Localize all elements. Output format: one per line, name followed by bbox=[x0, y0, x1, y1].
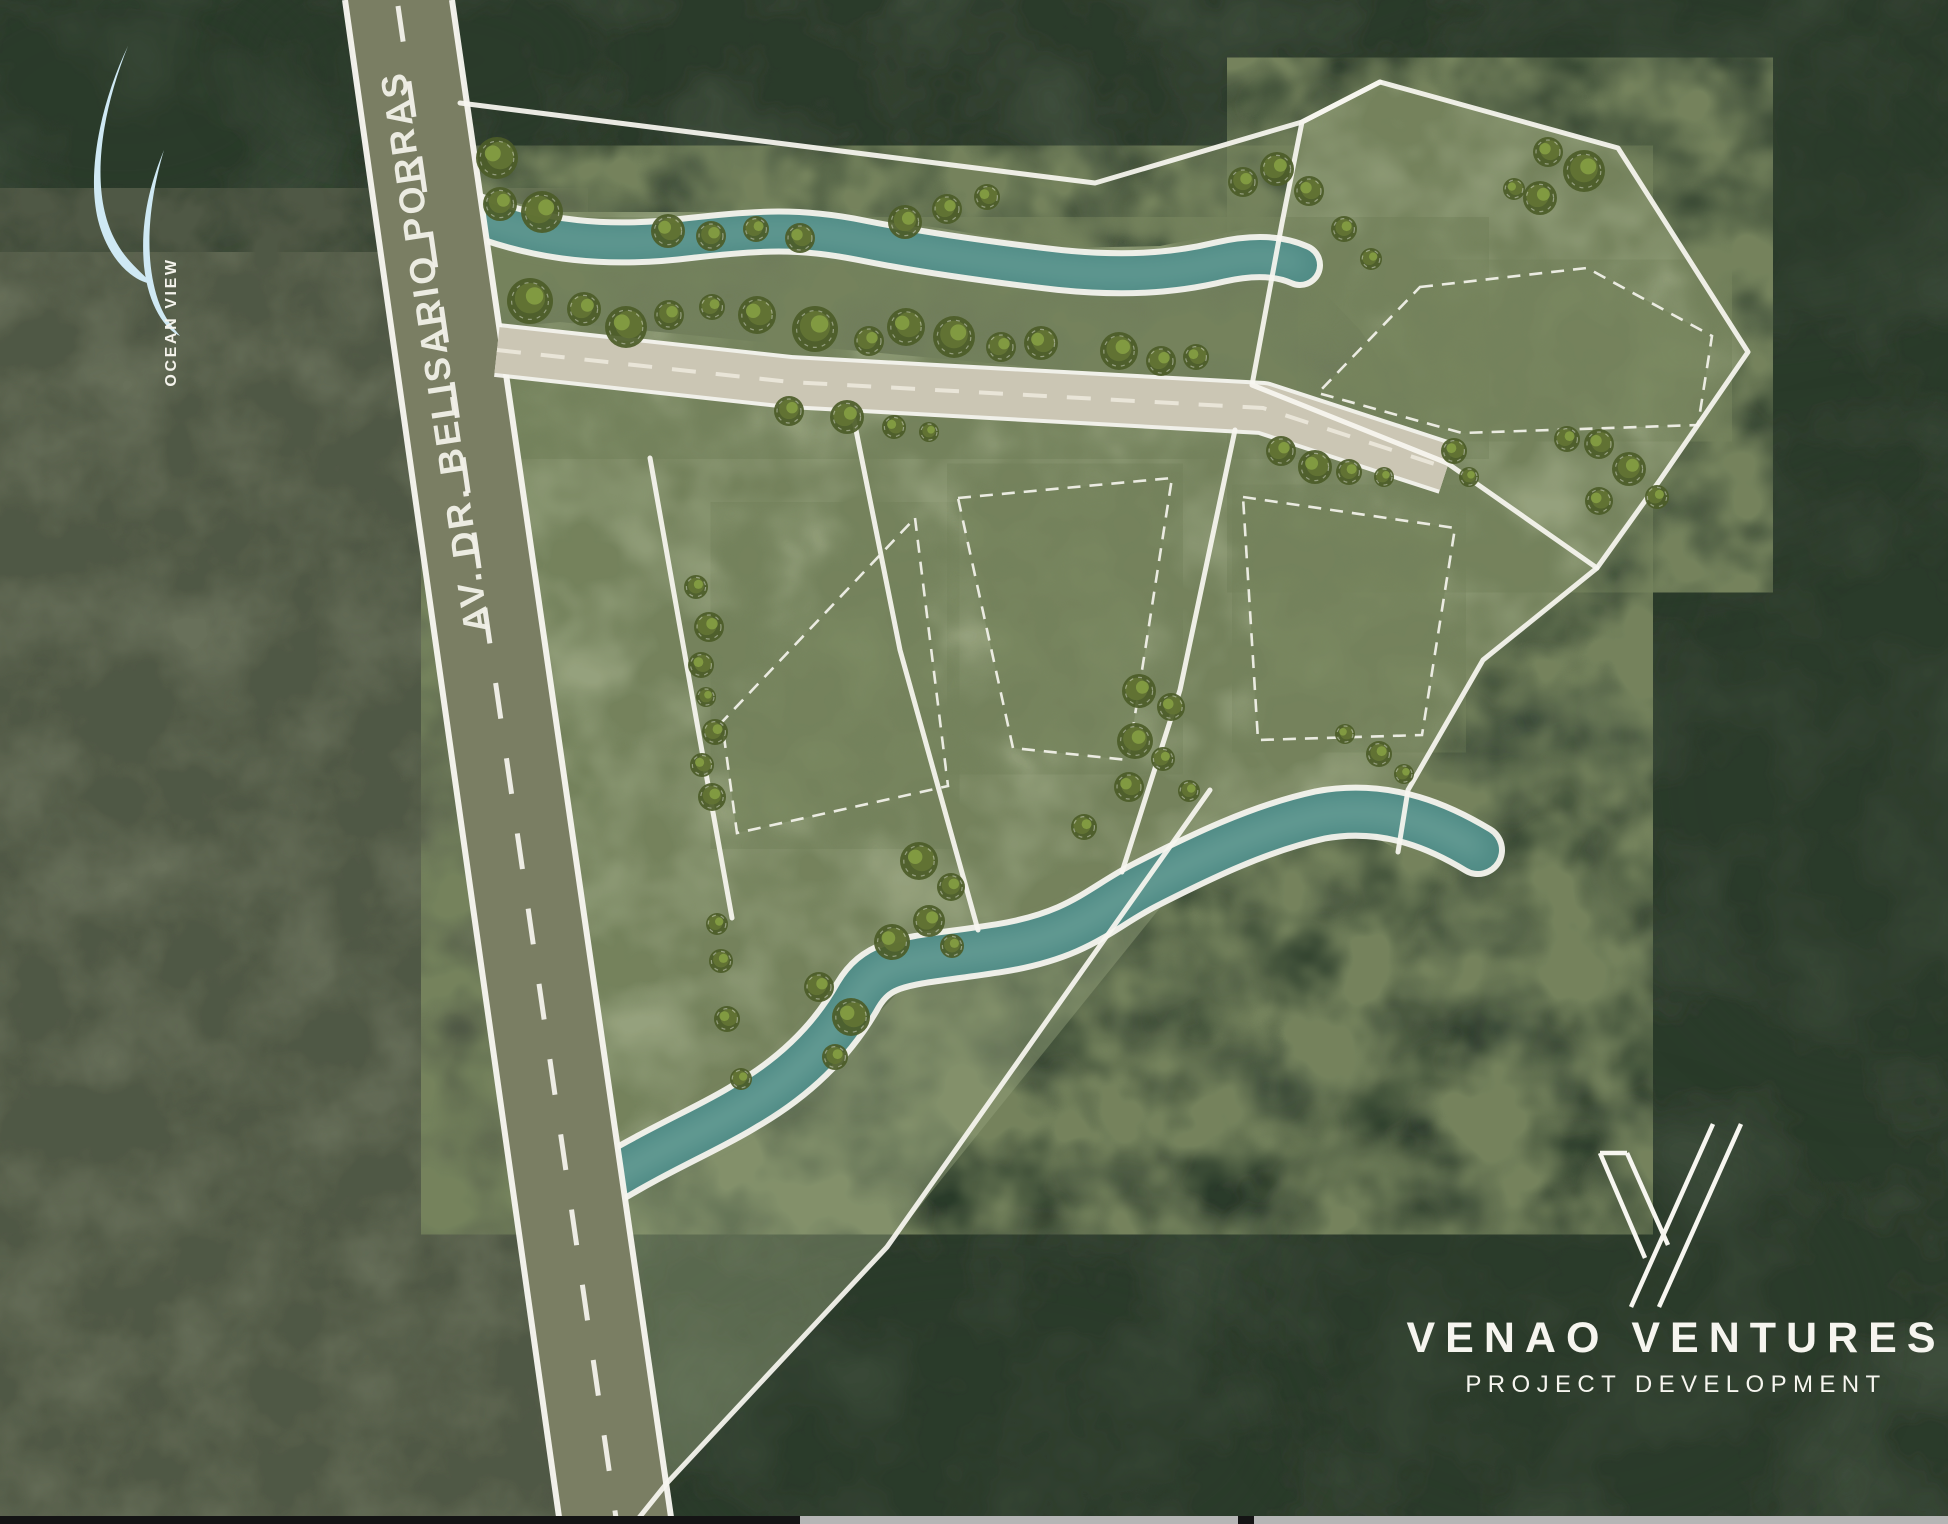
tree bbox=[940, 934, 964, 958]
tree bbox=[1360, 248, 1382, 270]
tree bbox=[651, 214, 685, 248]
tree bbox=[476, 137, 518, 179]
tree bbox=[696, 221, 726, 251]
tree bbox=[605, 306, 647, 348]
tree bbox=[1298, 450, 1332, 484]
tree bbox=[1228, 167, 1258, 197]
lot3-building-envelope bbox=[1243, 497, 1455, 740]
master-plan-canvas: AV. DR. BELISARIO PORRAS OCEAN VIEW VENA… bbox=[0, 0, 1948, 1524]
tree bbox=[521, 191, 563, 233]
tree bbox=[774, 396, 804, 426]
tree bbox=[1024, 326, 1058, 360]
tree bbox=[1114, 772, 1144, 802]
tree bbox=[1554, 426, 1580, 452]
tree bbox=[684, 575, 708, 599]
tree bbox=[696, 687, 716, 707]
tree bbox=[1183, 344, 1209, 370]
tree bbox=[1266, 436, 1296, 466]
tree bbox=[919, 422, 939, 442]
tree bbox=[1336, 459, 1362, 485]
brand-name: VENAO VENTURES bbox=[1406, 1314, 1945, 1362]
tree bbox=[743, 216, 769, 242]
tree bbox=[1394, 764, 1414, 784]
tree bbox=[1117, 723, 1153, 759]
tree bbox=[702, 719, 728, 745]
site-plan-map: AV. DR. BELISARIO PORRAS OCEAN VIEW VENA… bbox=[0, 0, 1948, 1524]
tree bbox=[832, 998, 870, 1036]
tree bbox=[738, 296, 776, 334]
tree bbox=[698, 783, 726, 811]
tree bbox=[1612, 452, 1646, 486]
tree bbox=[792, 306, 838, 352]
tree bbox=[1533, 137, 1563, 167]
tree bbox=[854, 326, 884, 356]
tree bbox=[1523, 181, 1557, 215]
tree bbox=[1563, 150, 1605, 192]
tree bbox=[822, 1044, 848, 1070]
tree bbox=[507, 278, 553, 324]
tree bbox=[1335, 724, 1355, 744]
tree bbox=[1146, 346, 1176, 376]
tree bbox=[1071, 814, 1097, 840]
tree bbox=[1441, 438, 1467, 464]
tree bbox=[1260, 152, 1294, 186]
tree bbox=[986, 332, 1016, 362]
tree bbox=[730, 1068, 752, 1090]
tree bbox=[888, 205, 922, 239]
tree bbox=[1331, 216, 1357, 242]
tree bbox=[1151, 747, 1175, 771]
tree bbox=[937, 873, 965, 901]
ocean-view-label: OCEAN VIEW bbox=[163, 257, 180, 386]
tree bbox=[709, 949, 733, 973]
tree bbox=[1584, 429, 1614, 459]
tree bbox=[688, 652, 714, 678]
tree bbox=[900, 842, 938, 880]
tree bbox=[882, 415, 906, 439]
tree bbox=[567, 292, 601, 326]
tree bbox=[830, 400, 864, 434]
tree bbox=[714, 1006, 740, 1032]
tree bbox=[874, 924, 910, 960]
tree bbox=[913, 905, 945, 937]
brand-subtitle: PROJECT DEVELOPMENT bbox=[1465, 1371, 1886, 1398]
tree bbox=[932, 194, 962, 224]
tree bbox=[1585, 487, 1613, 515]
tree bbox=[1459, 467, 1479, 487]
tree bbox=[785, 223, 815, 253]
tree bbox=[706, 913, 728, 935]
tree bbox=[1503, 178, 1525, 200]
tree bbox=[933, 316, 975, 358]
tree bbox=[1366, 741, 1392, 767]
tree bbox=[974, 184, 1000, 210]
bottom-edge-bar bbox=[0, 1516, 1948, 1524]
tree bbox=[1122, 674, 1156, 708]
tree bbox=[1157, 693, 1185, 721]
tree bbox=[690, 753, 714, 777]
tree bbox=[699, 294, 725, 320]
tree bbox=[1294, 176, 1324, 206]
tree bbox=[654, 300, 684, 330]
tree bbox=[804, 972, 834, 1002]
tree bbox=[887, 308, 925, 346]
tree bbox=[1100, 332, 1138, 370]
tree bbox=[1645, 485, 1669, 509]
tree bbox=[483, 187, 517, 221]
tree bbox=[1178, 780, 1200, 802]
tree bbox=[694, 612, 724, 642]
tree bbox=[1374, 467, 1394, 487]
